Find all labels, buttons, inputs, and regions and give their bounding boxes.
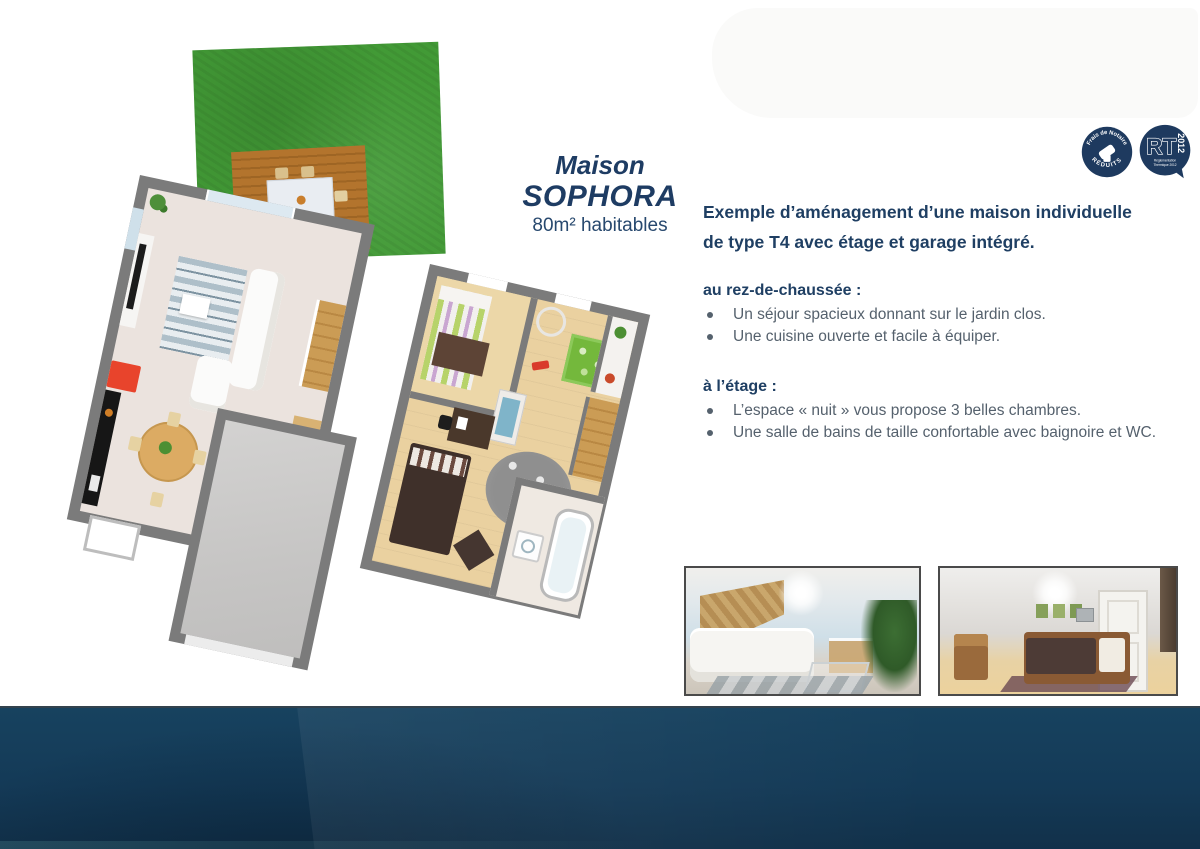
background-blob bbox=[712, 8, 1198, 118]
section-heading: à l’étage : bbox=[703, 376, 1173, 397]
kitchen-counter bbox=[82, 390, 122, 507]
badge-group: Frais de Notaire RÉDUITS RT 2012 Régleme… bbox=[1080, 122, 1195, 182]
fridge bbox=[106, 360, 141, 393]
staircase-upper bbox=[568, 397, 619, 483]
title-block: Maison SOPHORA 80m² habitables bbox=[460, 150, 740, 238]
rt-text: RT bbox=[1146, 134, 1176, 159]
bullet-item: Une salle de bains de taille confortable… bbox=[703, 422, 1173, 444]
washing-machine bbox=[511, 529, 545, 563]
photo-chambre bbox=[938, 566, 1178, 696]
rt-subtext-1: Réglementation bbox=[1154, 158, 1176, 162]
photo-chair bbox=[954, 634, 988, 680]
stamp-base-icon bbox=[1103, 155, 1110, 162]
photo-bed bbox=[1024, 632, 1130, 684]
house-surface: 80m² habitables bbox=[460, 214, 740, 238]
section-etage: à l’étage : L’espace « nuit » vous propo… bbox=[703, 376, 1173, 444]
photo-sejour bbox=[684, 566, 921, 696]
upper-floor-interior bbox=[372, 276, 638, 607]
staircase bbox=[299, 300, 347, 392]
intro-line-1: Exemple d’aménagement d’une maison indiv… bbox=[703, 197, 1173, 227]
shelf-nook bbox=[590, 315, 638, 398]
dining-table bbox=[132, 416, 203, 487]
photo-rug bbox=[706, 676, 873, 694]
brochure-page: Maison SOPHORA 80m² habitables Frais de … bbox=[0, 0, 1200, 849]
wall-frame bbox=[1076, 608, 1094, 622]
bed-striped bbox=[420, 285, 492, 390]
dark-rug bbox=[453, 530, 494, 571]
chandelier bbox=[778, 570, 824, 616]
ceiling-lamp bbox=[533, 304, 569, 340]
bullet-item: Une cuisine ouverte et facile à équiper. bbox=[703, 326, 1173, 348]
plan-etage bbox=[360, 264, 650, 619]
rt-subtext-2: Thermique 2012 bbox=[1153, 163, 1176, 167]
footer-wave bbox=[295, 706, 1200, 849]
photo-window bbox=[1160, 568, 1176, 652]
house-title-line1: Maison bbox=[460, 150, 740, 180]
master-bed bbox=[388, 442, 471, 555]
bathtub bbox=[537, 506, 597, 605]
window-opening bbox=[554, 293, 591, 311]
section-rez-de-chaussee: au rez-de-chaussée : Un séjour spacieux … bbox=[703, 280, 1173, 348]
intro-line-2: de type T4 avec étage et garage intégré. bbox=[703, 227, 1173, 257]
toy-car bbox=[531, 360, 549, 371]
frais-de-notaire-badge: Frais de Notaire RÉDUITS bbox=[1080, 125, 1134, 179]
photo-sofa bbox=[690, 628, 814, 682]
indoor-plant bbox=[148, 193, 167, 212]
description-intro: Exemple d’aménagement d’une maison indiv… bbox=[703, 197, 1173, 257]
house-title-line2: SOPHORA bbox=[460, 180, 740, 213]
rt-year-text: 2012 bbox=[1176, 133, 1186, 153]
bullet-item: L’espace « nuit » vous propose 3 belles … bbox=[703, 400, 1173, 422]
rt2012-badge: RT 2012 Réglementation Thermique 2012 bbox=[1135, 122, 1195, 182]
sofa-chaise bbox=[188, 354, 234, 414]
bullet-item: Un séjour spacieux donnant sur le jardin… bbox=[703, 304, 1173, 326]
footer-band bbox=[0, 706, 1200, 849]
section-heading: au rez-de-chaussée : bbox=[703, 280, 1173, 301]
footer-wave bbox=[0, 841, 660, 849]
